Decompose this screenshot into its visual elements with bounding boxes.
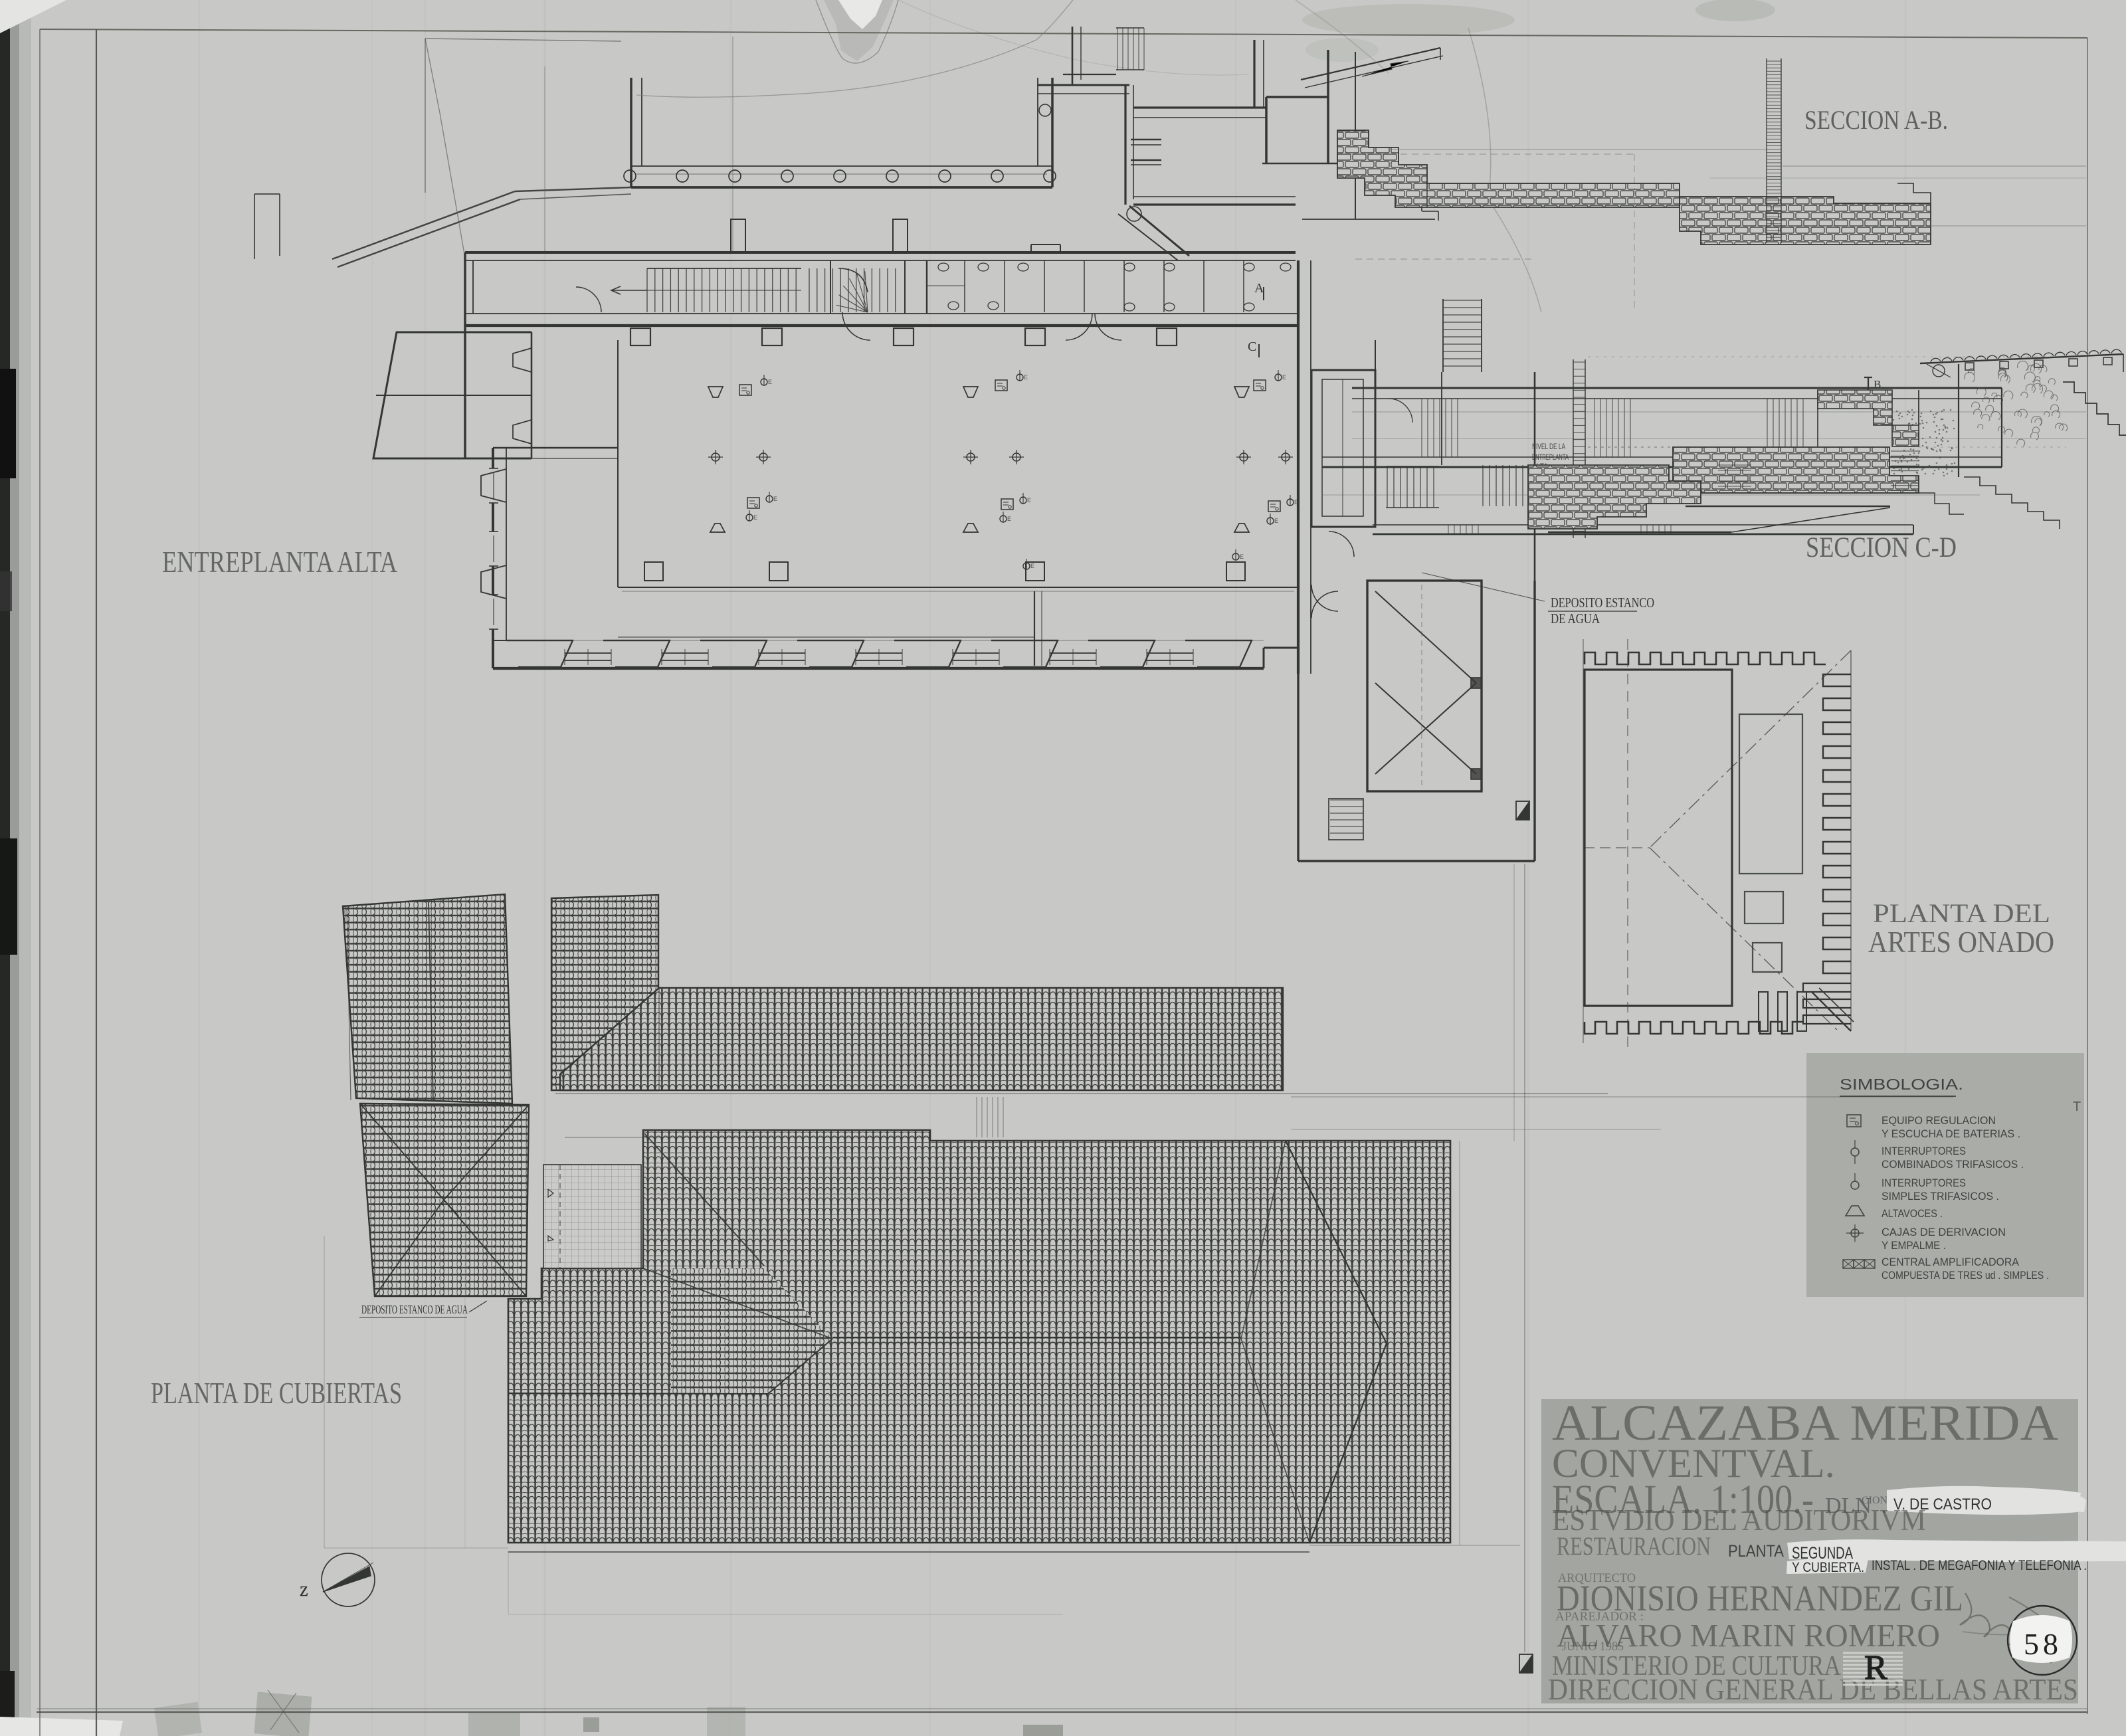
svg-text:SECCION A-B.: SECCION A-B. [1804, 105, 1948, 135]
svg-text:E: E [1282, 374, 1286, 381]
svg-text:DEPOSITO ESTANCO: DEPOSITO ESTANCO [1551, 595, 1654, 611]
svg-text:CAJAS DE DERIVACION: CAJAS DE DERIVACION [1882, 1226, 2006, 1238]
svg-text:EQUIPO REGULACION: EQUIPO REGULACION [1882, 1114, 1996, 1127]
svg-text:CENTRAL AMPLIFICADORA: CENTRAL AMPLIFICADORA [1882, 1256, 2020, 1268]
svg-text:E: E [1024, 374, 1028, 381]
svg-text:E: E [1027, 497, 1031, 504]
svg-text:NIVEL DE LA: NIVEL DE LA [1532, 442, 1565, 451]
svg-text:E: E [1007, 516, 1011, 522]
svg-text:E: E [1274, 518, 1278, 524]
svg-text:ALTAVOCES .: ALTAVOCES . [1882, 1207, 1943, 1220]
svg-text:DE AGUA: DE AGUA [1551, 611, 1600, 627]
svg-text:SIMBOLOGIA.: SIMBOLOGIA. [1840, 1076, 1963, 1093]
svg-text:PLANTA: PLANTA [1728, 1542, 1784, 1561]
svg-text:ENTREPLANTA: ENTREPLANTA [1532, 452, 1569, 462]
svg-text:E: E [1240, 553, 1244, 560]
svg-text:Y EMPALME .: Y EMPALME . [1882, 1239, 1946, 1252]
svg-text:DEPOSITO ESTANCO DE AGUA: DEPOSITO ESTANCO DE AGUA [361, 1303, 468, 1316]
svg-text:COMBINADOS TRIFASICOS .: COMBINADOS TRIFASICOS . [1882, 1158, 2024, 1171]
svg-text:PLANTA DEL: PLANTA DEL [1873, 898, 2050, 928]
svg-text:R: R [1864, 1649, 1887, 1687]
svg-text:ENTREPLANTA ALTA: ENTREPLANTA ALTA [162, 545, 397, 579]
svg-text:T: T [2073, 1100, 2081, 1114]
svg-text:Y CUBIERTA.: Y CUBIERTA. [1792, 1560, 1864, 1575]
svg-text:SECCION C-D: SECCION C-D [1806, 532, 1957, 563]
svg-text:C: C [1248, 339, 1256, 354]
svg-text:E: E [768, 379, 772, 385]
svg-text:Z: Z [300, 1583, 308, 1599]
svg-text:58: 58 [2024, 1627, 2062, 1661]
svg-text:DIRECCION GENERAL DE BELLAS A: DIRECCION GENERAL DE BELLAS ARTES [1548, 1673, 2078, 1706]
svg-text:ARTES ONADO: ARTES ONADO [1868, 925, 2054, 959]
svg-text:RESTAURACION: RESTAURACION [1557, 1532, 1711, 1561]
svg-text:COMPUESTA DE TRES ud . SIMPLES: COMPUESTA DE TRES ud . SIMPLES . [1882, 1269, 2049, 1282]
svg-text:PLANTA DE CUBIERTAS: PLANTA DE CUBIERTAS [151, 1376, 402, 1410]
svg-text:E: E [773, 496, 777, 502]
svg-text:INTERRUPTORES: INTERRUPTORES [1882, 1145, 1966, 1157]
svg-text:INTERRUPTORES: INTERRUPTORES [1882, 1177, 1966, 1189]
svg-text:A: A [1254, 281, 1264, 296]
svg-text:E: E [1030, 563, 1034, 569]
svg-text:Y ESCUCHA DE BATERIAS .: Y ESCUCHA DE BATERIAS . [1882, 1127, 2020, 1140]
svg-text:E: E [753, 514, 757, 521]
svg-text:E: E [1294, 499, 1298, 506]
svg-text:SIMPLES TRIFASICOS .: SIMPLES TRIFASICOS . [1882, 1190, 1999, 1203]
svg-text:B: B [1874, 378, 1881, 391]
svg-text:INSTAL . DE MEGAFONIA Y TELEFO: INSTAL . DE MEGAFONIA Y TELEFONIA . [1872, 1558, 2087, 1573]
